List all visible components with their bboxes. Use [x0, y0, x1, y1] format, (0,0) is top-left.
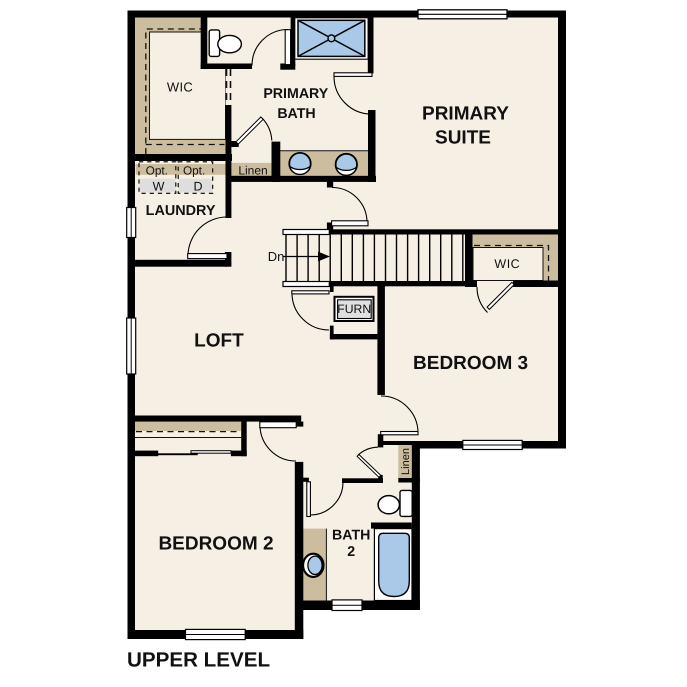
svg-text:LOFT: LOFT: [194, 331, 244, 352]
svg-text:BEDROOM 3: BEDROOM 3: [413, 353, 528, 374]
svg-text:2: 2: [347, 544, 355, 560]
svg-text:W: W: [153, 180, 165, 194]
svg-text:UPPER LEVEL: UPPER LEVEL: [127, 649, 270, 672]
svg-text:PRIMARY: PRIMARY: [263, 86, 328, 102]
svg-text:PRIMARY: PRIMARY: [422, 104, 509, 125]
svg-text:Opt.: Opt.: [146, 164, 168, 178]
svg-text:WIC: WIC: [494, 257, 520, 271]
svg-text:SUITE: SUITE: [435, 127, 491, 148]
svg-text:Linen: Linen: [238, 164, 267, 178]
svg-text:LAUNDRY: LAUNDRY: [146, 203, 216, 219]
svg-text:BEDROOM 2: BEDROOM 2: [158, 534, 273, 555]
svg-text:D: D: [193, 180, 202, 194]
svg-text:Linen: Linen: [400, 448, 412, 475]
svg-text:Dn: Dn: [268, 249, 285, 264]
svg-text:BATH: BATH: [277, 106, 315, 122]
svg-text:WIC: WIC: [167, 79, 193, 94]
svg-text:Opt.: Opt.: [183, 164, 205, 178]
svg-text:BATH: BATH: [332, 527, 370, 543]
svg-text:FURN: FURN: [337, 302, 371, 316]
